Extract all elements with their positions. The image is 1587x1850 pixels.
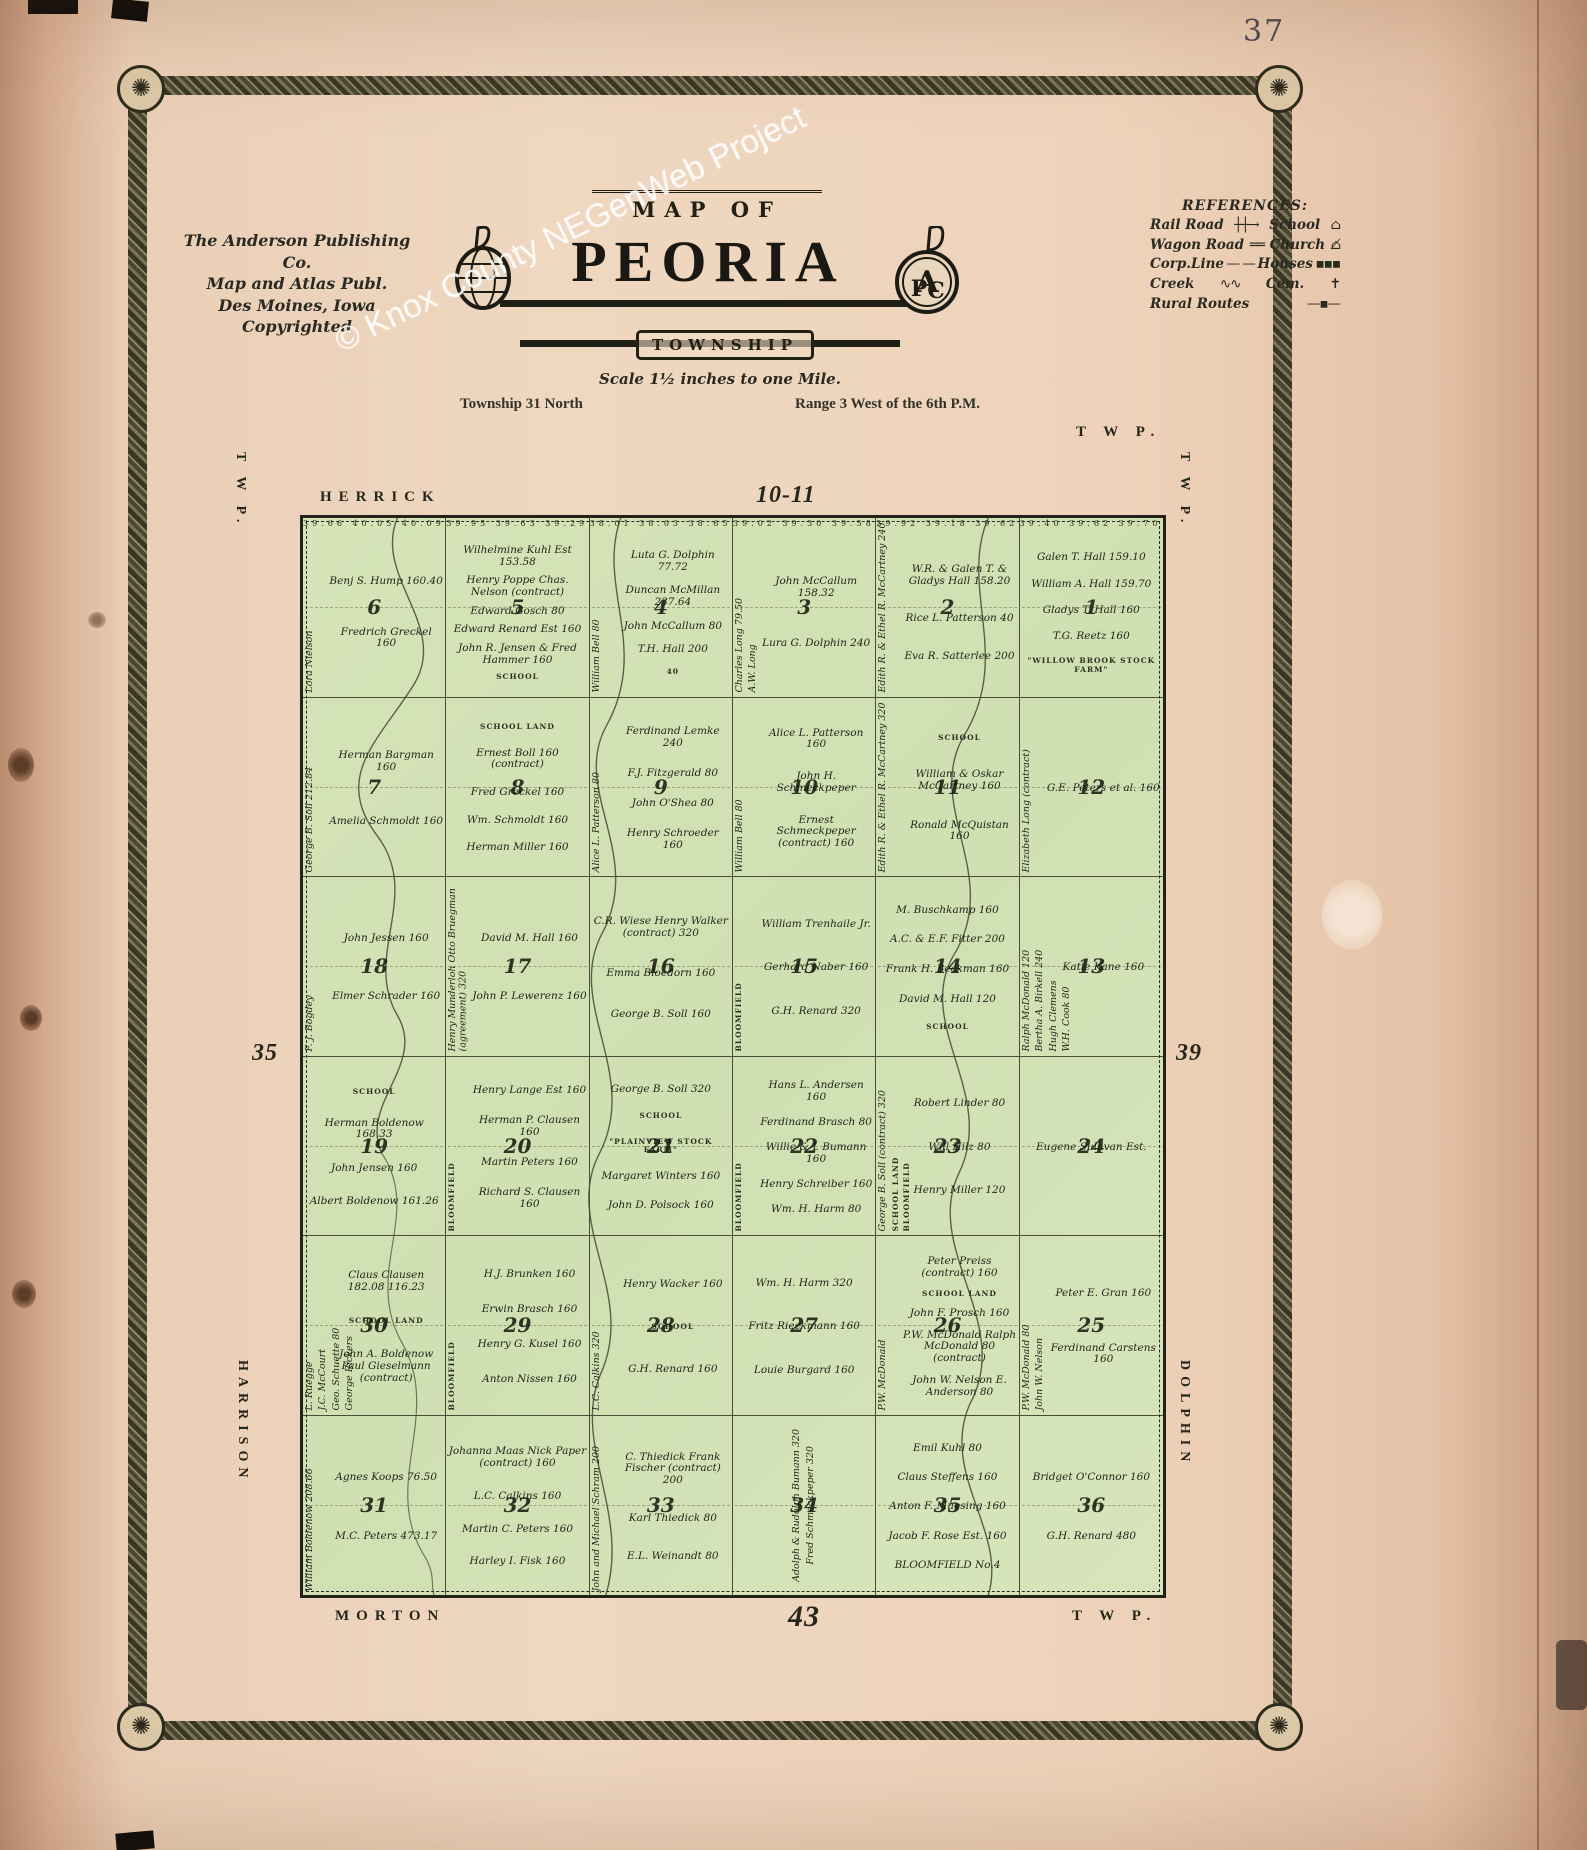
owner-label: Herman Bargman 160 [329,750,443,774]
map-section: 36Bridget O'Connor 160G.H. Renard 480 [1020,1416,1163,1596]
owner-label: M.C. Peters 473.17 [335,1531,437,1543]
section-number: 16 [647,954,675,978]
scale-label: Scale 1½ inches to one Mile. [560,370,880,388]
owner-label: SCHOOL [938,734,981,742]
rural-routes-label: Rural Routes [1150,295,1249,315]
corner-rosette-icon: ✺ [1255,1703,1303,1751]
owner-label: David M. Hall 120 [899,994,996,1006]
section-number: 17 [504,954,532,978]
map-section: 39.92 39.18 39.62 37.402Edith R. & Ethel… [876,518,1019,698]
owner-label: Ferdinand Carstens 160 [1046,1343,1161,1367]
school-label: School [1269,216,1320,236]
section-number: 26 [934,1313,962,1337]
section-number: 34 [790,1493,818,1517]
map-section: 26P.W. McDonaldPeter Preiss (contract) 1… [876,1236,1019,1416]
township-range-line: Township 31 North Range 3 West of the 6t… [460,396,980,413]
section-number: 12 [1077,775,1105,799]
owner-label: BLOOMFIELD No.4 [895,1560,1001,1572]
owner-label: Henry Wacker 160 [623,1279,722,1291]
owner-label: T.G. Reetz 160 [1053,631,1130,643]
owner-label: John Jensen 160 [331,1163,417,1175]
references-legend: REFERENCES: Rail Road ┼┼→ School ⌂ Wagon… [1150,196,1340,314]
owner-label: Hans L. Andersen 160 [759,1080,873,1104]
section-number: 27 [790,1313,818,1337]
owner-label: Johanna Maas Nick Paper (contract) 160 [448,1446,586,1470]
section-number: 8 [511,775,525,799]
owner-label: Wm. Schmoldt 160 [467,815,568,827]
wagon-road-label: Wagon Road [1150,236,1244,256]
map-section: 39.02 39.30 39.58 39.063Charles Long 79.… [733,518,876,698]
map-section: 33John and Michael Schram 200C. Thiedick… [590,1416,733,1596]
owner-label: Claus Clausen 182.08 116.23 [329,1270,443,1294]
owner-label: Elmer Schrader 160 [332,991,440,1003]
binding-tab [115,1830,154,1850]
owner-label: Ernest Schmeckpeper (contract) 160 [759,815,873,850]
edge-label-section-39: 39 [1176,1040,1202,1067]
edge-label-road-43: 43 [788,1600,820,1634]
owner-label: John P. Lewerenz 160 [472,991,586,1003]
church-label: Church [1270,236,1326,256]
corner-rosette-icon: ✺ [117,1703,165,1751]
owner-label: Peter E. Gran 160 [1055,1288,1151,1300]
owner-label: Henry Schroeder 160 [616,828,730,852]
edge-label-harrison: HARRISON [234,1360,250,1483]
railroad-line-icon: ┼┼→ [1234,216,1259,236]
owner-label: E.L. Weinandt 80 [627,1551,719,1563]
section-number: 11 [934,775,962,799]
owner-label: G.H. Renard 480 [1047,1531,1136,1543]
map-section: 7George B. Soll 212.84Herman Bargman 160… [303,698,446,878]
edge-label-twp-bottom-right: T W P. [1072,1608,1157,1625]
edge-acreage-numbers: 39.40 39.62 39.70 39.32 [1020,518,1163,528]
owner-label: Henry G. Kusel 160 [478,1339,582,1351]
owner-label: Harley I. Fisk 160 [470,1556,566,1568]
owner-label: Agnes Koops 76.50 [335,1472,437,1484]
owner-label: George B. Soll 320 [611,1084,711,1096]
map-section: 25P.W. McDonald 80John W. NelsonPeter E.… [1020,1236,1163,1416]
owner-label: John A. Boldenow Paul Gieselmann (contra… [329,1349,443,1384]
owner-label: Robert Linder 80 [914,1098,1006,1110]
township-map-canvas: 39.66 40.05 40.09 40.116Lora NielsonBenj… [300,515,1166,1598]
wormhole-spot [12,1280,36,1308]
school-icon: ⌂ [1331,216,1340,236]
section-number: 35 [934,1493,962,1517]
map-section: 12Elizabeth Long (contract)G.E. Peters e… [1020,698,1163,878]
svg-text:C: C [927,278,945,304]
edge-label-dolphin: DOLPHIN [1176,1360,1192,1467]
section-number: 25 [1077,1313,1105,1337]
owner-label: W.R. & Galen T. & Gladys Hall 158.20 [902,564,1016,588]
publisher-line: Map and Atlas Publ. [172,273,422,295]
owner-label: John Jessen 160 [344,933,429,945]
publisher-line: The Anderson Publishing Co. [172,230,422,273]
map-section: 28L.C. Calkins 320Henry Wacker 160SCHOOL… [590,1236,733,1416]
map-section: 39.40 39.62 39.70 39.321Galen T. Hall 15… [1020,518,1163,698]
page-number: 37 [1243,14,1285,49]
edge-acreage-numbers: 39.95 39.63 39.29 38.97 [446,518,588,528]
section-number: 31 [360,1493,388,1517]
owner-label: Alice L. Patterson 160 [759,728,873,752]
owner-label: John O'Shea 80 [632,798,714,810]
owner-label: Amelia Schmoldt 160 [329,816,443,828]
section-number: 23 [934,1134,962,1158]
section-number: 14 [934,954,962,978]
houses-icon: ▪▪▪ [1316,255,1340,275]
edge-label-twp-top-right: T W P. [1076,424,1161,441]
edge-label-twp-left: T W P. [232,452,248,528]
edge-label-road-10-11: 10-11 [756,482,816,509]
edge-acreage-numbers: 38.01 38.03 38.65 38.07 [590,518,732,528]
map-section: 11Edith R. & Ethel R. McCartney 320SCHOO… [876,698,1019,878]
map-section: 15BLOOMFIELDWilliam Trenhaile Jr.Gerhard… [733,877,876,1057]
section-number: 2 [941,595,955,619]
page-edge-line [1537,0,1539,1850]
owner-label: T.H. Hall 200 [638,644,708,656]
stain-spot [88,612,106,628]
section-number: 21 [647,1134,675,1158]
owner-label: Luta G. Dolphin 77.72 [616,550,730,574]
owner-label: 40 [667,668,679,676]
torn-paper-spot [1322,880,1382,950]
owner-label: Richard S. Clausen 160 [472,1187,586,1211]
wagon-road-line-icon: ══ [1250,236,1264,256]
section-number: 22 [790,1134,818,1158]
railroad-label: Rail Road [1150,216,1224,236]
map-section: 31William Boldenow 208.66Agnes Koops 76.… [303,1416,446,1596]
owner-label: Galen T. Hall 159.10 [1037,552,1146,564]
cemetery-label: Cem. [1266,275,1304,295]
houses-label: Houses [1258,255,1313,275]
church-icon: ⌂̸ [1331,236,1340,256]
edge-label-section-35: 35 [252,1040,278,1067]
owner-label: Louie Burgard 160 [754,1365,855,1377]
edge-label-herrick: HERRICK [320,489,441,506]
page-edge-shadow [1556,1640,1587,1710]
owner-label: H.J. Brunken 160 [484,1269,576,1281]
binding-tab [111,0,149,22]
section-number: 33 [647,1493,675,1517]
edge-label-morton: MORTON [335,1608,445,1625]
owner-label: C. Thiedick Frank Fischer (contract) 200 [616,1452,730,1487]
owner-label: David M. Hall 160 [481,933,578,945]
reference-item: Corp.Line — — Houses ▪▪▪ [1150,255,1340,275]
section-number: 24 [1077,1134,1105,1158]
map-section: 22BLOOMFIELDHans L. Andersen 160Ferdinan… [733,1057,876,1237]
svg-text:P: P [911,276,928,302]
owner-label: Ronald McQuistan 160 [902,820,1016,844]
owner-label: Wm. H. Harm 80 [771,1204,861,1216]
owner-label: Duncan McMillan 237.64 [616,585,730,609]
owner-label: John McCallum 80 [624,621,722,633]
atlas-page-photo: 37 ✺ ✺ ✺ ✺ The Anderson Publishing Co. M… [0,0,1587,1850]
map-section: 17Henry Munderloh Otto Bruegman (agreeme… [446,877,589,1057]
map-section: 39.95 39.63 39.29 38.975Wilhelmine Kuhl … [446,518,589,698]
references-title: REFERENCES: [1150,196,1340,216]
owner-label: Henry Schreiber 160 [760,1179,872,1191]
map-section: 9Alice L. Patterson 80Ferdinand Lemke 24… [590,698,733,878]
creek-line-icon: ∿∿ [1220,275,1241,295]
section-number: 1 [1084,595,1098,619]
map-section: 35Emil Kuhl 80Claus Steffens 160Anton F.… [876,1416,1019,1596]
map-section: 8SCHOOL LANDErnest Boll 160 (contract)Fr… [446,698,589,878]
map-section: 23George B. Soll (contract) 320SCHOOL LA… [876,1057,1019,1237]
owner-label: SCHOOL LAND [480,723,555,731]
corp-line-label: Corp.Line [1150,255,1224,275]
owner-label: Eva R. Satterlee 200 [904,651,1014,663]
map-section: 14M. Buschkamp 160A.C. & E.F. Fitter 200… [876,877,1019,1057]
owner-label: William Trenhaile Jr. [762,919,871,931]
section-number: 10 [790,775,818,799]
reference-item: Creek ∿∿ Cem. ✝ [1150,275,1340,295]
wormhole-spot [20,1005,42,1031]
map-section: 27Wm. H. Harm 320Fritz Rieckmann 160Loui… [733,1236,876,1416]
owner-label: Rice L. Patterson 40 [905,613,1013,625]
map-section: 38.01 38.03 38.65 38.074William Bell 80L… [590,518,733,698]
owner-label: George B. Soll 160 [611,1009,711,1021]
cemetery-icon: ✝ [1330,275,1340,295]
owner-label: SCHOOL [639,1112,682,1120]
owner-label: C.R. Wiese Henry Walker (contract) 320 [592,916,730,940]
wormhole-spot [8,748,34,782]
owner-label: SCHOOL [496,673,539,681]
map-section: 21George B. Soll 320SCHOOL"PLAINVIEW STO… [590,1057,733,1237]
section-number: 18 [360,954,388,978]
corner-rosette-icon: ✺ [1255,65,1303,113]
owner-label: F.J. Fitzgerald 80 [628,768,718,780]
owner-label: Lura G. Dolphin 240 [762,638,870,650]
corp-line-icon: — — [1227,255,1255,275]
owner-label: M. Buschkamp 160 [896,905,999,917]
owner-label: Claus Steffens 160 [898,1472,998,1484]
map-section: 13Ralph McDonald 120Bertha A. Birkell 24… [1020,877,1163,1057]
owner-label: "WILLOW BROOK STOCK FARM" [1022,657,1161,674]
section-grid: 39.66 40.05 40.09 40.116Lora NielsonBenj… [303,518,1163,1595]
title-banner-bar [500,300,910,307]
reference-item: Rail Road ┼┼→ School ⌂ [1150,216,1340,236]
owner-label: Margaret Winters 160 [601,1171,720,1183]
publisher-monogram-icon: A P C [888,226,966,322]
owner-label: Ernest Boll 160 (contract) [448,748,586,772]
section-number: 6 [367,595,381,619]
township-name-title: PEORIA [548,228,868,295]
owner-label: Wm. H. Harm 320 [756,1278,853,1290]
owner-label: Ferdinand Brasch 80 [760,1117,872,1129]
owner-label: Bridget O'Connor 160 [1033,1472,1150,1484]
section-number: 4 [654,595,668,619]
owner-label: Herman Miller 160 [466,842,568,854]
owner-label: Ferdinand Lemke 240 [616,726,730,750]
corner-rosette-icon: ✺ [117,65,165,113]
owner-label: Emil Kuhl 80 [913,1443,982,1455]
section-number: 20 [504,1134,532,1158]
owner-label: Benj S. Hump 160.40 [329,576,442,588]
township-number-label: Township 31 North [460,396,583,413]
section-number: 9 [654,775,668,799]
reference-item: Rural Routes —▪— [1150,295,1340,315]
map-section: 18F. J. BogdeyJohn Jessen 160Elmer Schra… [303,877,446,1057]
binding-tab [28,0,78,14]
section-number: 13 [1077,954,1105,978]
map-section: 19SCHOOLHerman Boldenow 168.33John Jense… [303,1057,446,1237]
owner-label: SCHOOL [353,1088,396,1096]
owner-label: Fredrich Greckel 160 [329,627,443,651]
range-number-label: Range 3 West of the 6th P.M. [795,396,980,413]
rural-route-line-icon: —▪— [1307,295,1340,315]
map-section: 24Eugene Sullivan Est. [1020,1057,1163,1237]
section-number: 28 [647,1313,675,1337]
edge-acreage-numbers: 39.92 39.18 39.62 37.40 [876,518,1018,528]
map-section: 10William Bell 80Alice L. Patterson 160J… [733,698,876,878]
section-number: 7 [367,775,381,799]
section-number: 15 [790,954,818,978]
owner-label: John R. Jensen & Fred Hammer 160 [448,643,586,667]
section-number: 32 [504,1493,532,1517]
edge-label-twp-right: T W P. [1176,452,1192,528]
map-section: 16C.R. Wiese Henry Walker (contract) 320… [590,877,733,1057]
map-section: 34Adolph & Rudolph Bumann 320Fred Schmec… [733,1416,876,1596]
map-section: 39.66 40.05 40.09 40.116Lora NielsonBenj… [303,518,446,698]
owner-label: SCHOOL [926,1023,969,1031]
owner-label: William A. Hall 159.70 [1031,579,1151,591]
owner-label: Martin C. Peters 160 [462,1524,573,1536]
owner-label: G.H. Renard 320 [771,1006,860,1018]
map-section: 32Johanna Maas Nick Paper (contract) 160… [446,1416,589,1596]
section-number: 30 [360,1313,388,1337]
owner-label: John W. Nelson E. Anderson 80 [902,1375,1016,1399]
edge-acreage-numbers: 39.66 40.05 40.09 40.11 [303,518,445,528]
owner-label: A.C. & E.F. Fitter 200 [890,934,1005,946]
township-word-label: TOWNSHIP [636,330,814,360]
owner-label: Edward Renard Est 160 [454,624,582,636]
owner-label: Martin Peters 160 [481,1157,578,1169]
map-section: 30L. RueggeJ.C. McCourtGeo. Schuette 80G… [303,1236,446,1416]
owner-label: Albert Boldenow 161.26 [310,1196,439,1208]
owner-label: Henry Miller 120 [914,1185,1006,1197]
owner-label: Peter Preiss (contract) 160 [902,1256,1016,1280]
owner-label: Anton Nissen 160 [482,1374,577,1386]
owner-label: Jacob F. Rose Est. 160 [888,1531,1006,1543]
map-section: 29BLOOMFIELDH.J. Brunken 160Erwin Brasch… [446,1236,589,1416]
section-number: 5 [511,595,525,619]
creek-label: Creek [1150,275,1194,295]
reference-item: Wagon Road ══ Church ⌂̸ [1150,236,1340,256]
map-section: 20BLOOMFIELDHenry Lange Est 160Herman P.… [446,1057,589,1237]
owner-label: Wilhelmine Kuhl Est 153.58 [448,545,586,569]
section-number: 29 [504,1313,532,1337]
section-number: 36 [1077,1493,1105,1517]
section-number: 3 [797,595,811,619]
owner-label: G.H. Renard 160 [628,1364,717,1376]
owner-label: John McCallum 158.32 [759,576,873,600]
section-number: 19 [360,1134,388,1158]
owner-label: Henry Lange Est 160 [473,1085,586,1097]
owner-label: John D. Polsock 160 [608,1200,714,1212]
owner-label: SCHOOL LAND [922,1290,997,1298]
